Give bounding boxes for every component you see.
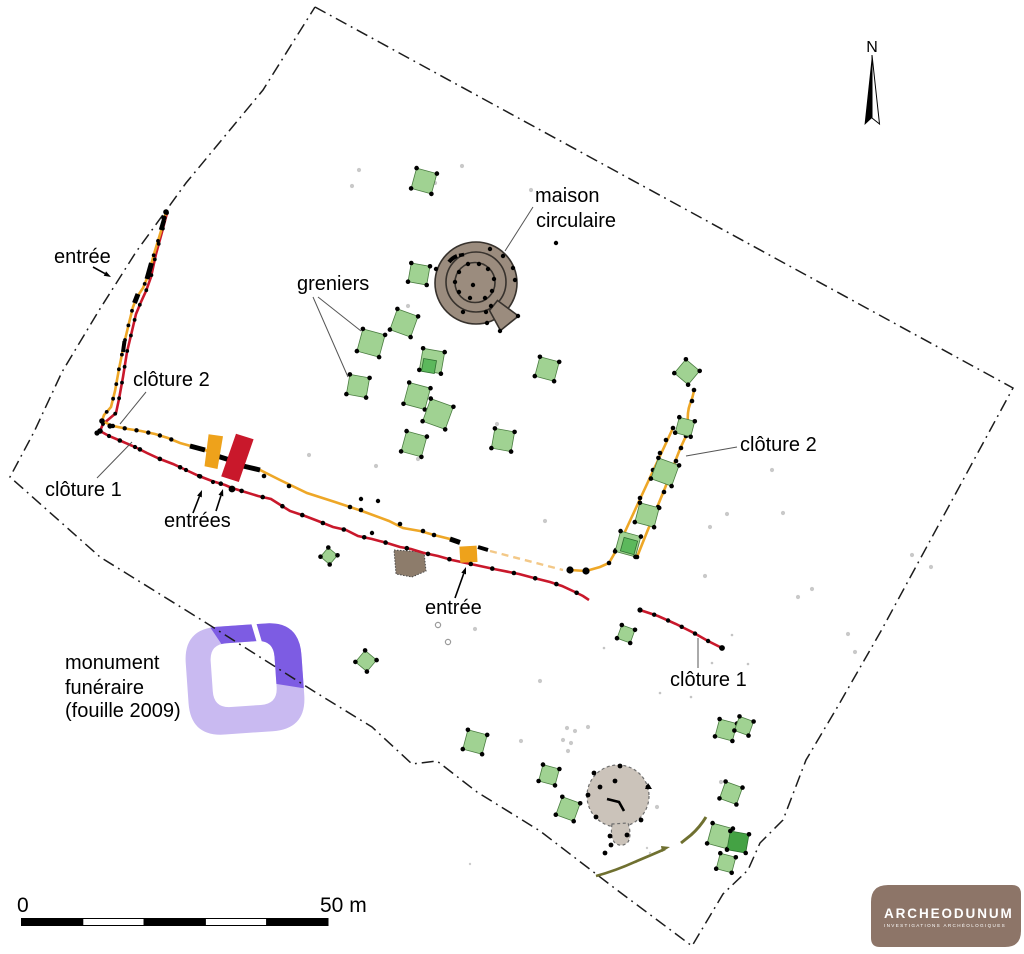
svg-text:entrées: entrées [164,510,231,532]
svg-text:50 m: 50 m [320,894,367,917]
svg-text:(fouille 2009): (fouille 2009) [65,700,181,722]
svg-text:clôture 2: clôture 2 [133,369,210,391]
svg-text:clôture 1: clôture 1 [670,669,747,691]
svg-text:N: N [866,39,878,56]
svg-text:entrée: entrée [54,246,111,268]
svg-text:monument: monument [65,652,160,674]
svg-text:ARCHEODUNUM: ARCHEODUNUM [884,906,1014,921]
svg-text:circulaire: circulaire [536,210,616,232]
svg-text:funéraire: funéraire [65,677,144,699]
svg-text:entrée: entrée [425,597,482,619]
svg-text:clôture 2: clôture 2 [740,434,817,456]
svg-text:greniers: greniers [297,273,369,295]
svg-text:INVESTIGATIONS ARCHÉOLOGIQUES: INVESTIGATIONS ARCHÉOLOGIQUES [884,922,1006,928]
svg-text:clôture 1: clôture 1 [45,479,122,501]
svg-text:maison: maison [535,185,599,207]
svg-text:0: 0 [17,894,29,917]
